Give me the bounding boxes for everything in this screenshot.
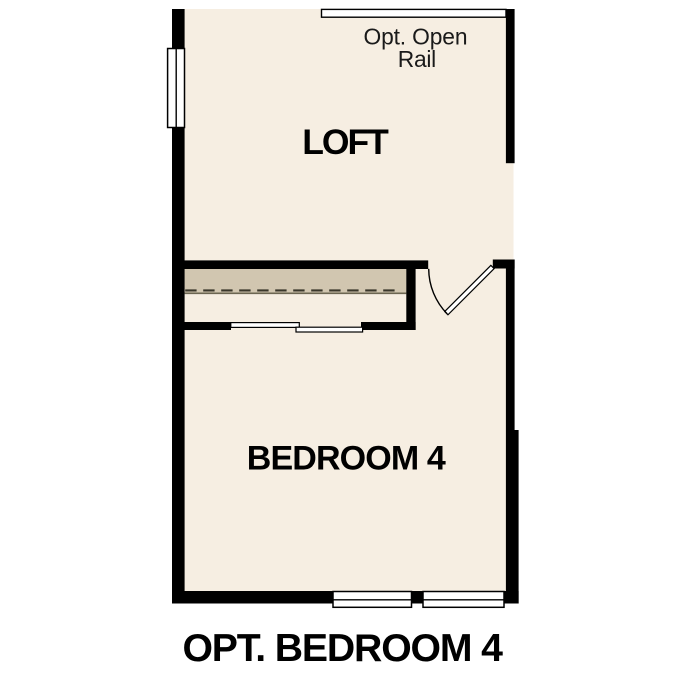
svg-text:OPT. BEDROOM 4: OPT. BEDROOM 4 [182, 627, 503, 670]
svg-text:BEDROOM 4: BEDROOM 4 [247, 440, 446, 478]
svg-text:Rail: Rail [398, 46, 437, 72]
svg-text:LOFT: LOFT [302, 122, 389, 162]
